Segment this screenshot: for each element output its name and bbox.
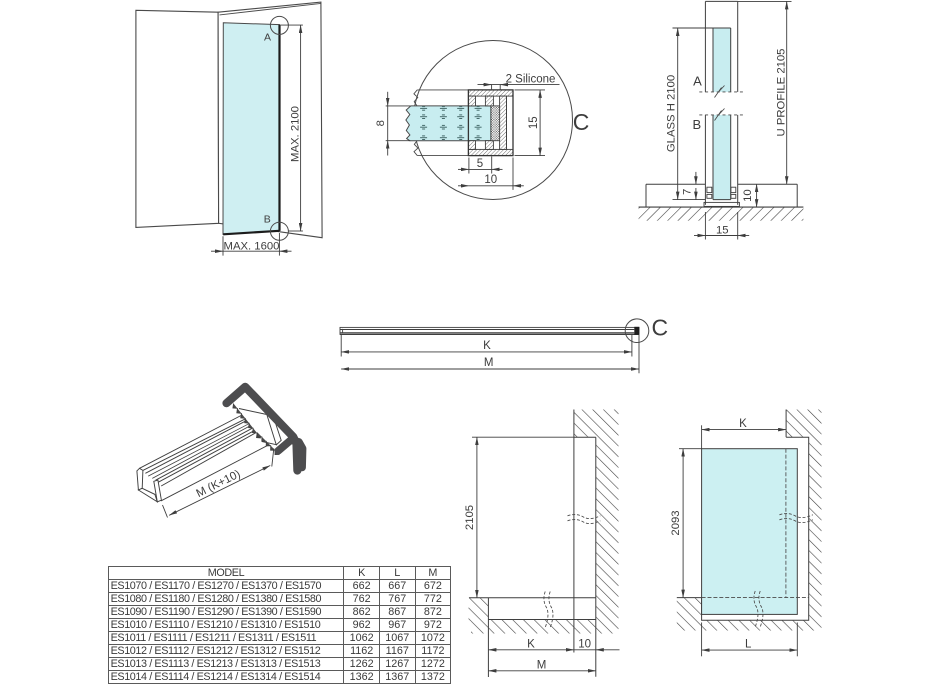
svg-text:A: A: [264, 32, 271, 44]
svg-text:K: K: [527, 638, 535, 650]
svg-text:B: B: [264, 214, 271, 226]
svg-text:C: C: [573, 109, 590, 135]
svg-text:2 Silicone: 2 Silicone: [506, 74, 556, 86]
svg-text:MAX. 2100: MAX. 2100: [290, 106, 302, 162]
svg-text:10: 10: [742, 189, 754, 202]
svg-text:M: M: [537, 659, 547, 671]
svg-text:B: B: [692, 117, 701, 132]
svg-text:15: 15: [528, 116, 540, 129]
svg-text:M (K+10): M (K+10): [194, 468, 242, 500]
svg-text:15: 15: [716, 224, 729, 236]
svg-text:A: A: [693, 74, 702, 89]
svg-text:10: 10: [484, 174, 497, 186]
svg-text:2093: 2093: [670, 510, 682, 535]
svg-text:K: K: [483, 340, 491, 352]
svg-text:U PROFILE 2105: U PROFILE 2105: [775, 49, 787, 137]
svg-text:7: 7: [681, 189, 693, 195]
svg-text:10: 10: [578, 638, 591, 650]
svg-text:C: C: [651, 315, 668, 341]
svg-text:MAX. 1600: MAX. 1600: [224, 241, 280, 253]
svg-text:GLASS H 2100: GLASS H 2100: [665, 75, 677, 152]
svg-text:L: L: [745, 639, 752, 651]
svg-text:M: M: [484, 357, 494, 369]
svg-text:2105: 2105: [464, 505, 476, 530]
svg-text:5: 5: [477, 158, 483, 170]
svg-text:K: K: [739, 418, 747, 430]
svg-text:8: 8: [375, 120, 387, 126]
